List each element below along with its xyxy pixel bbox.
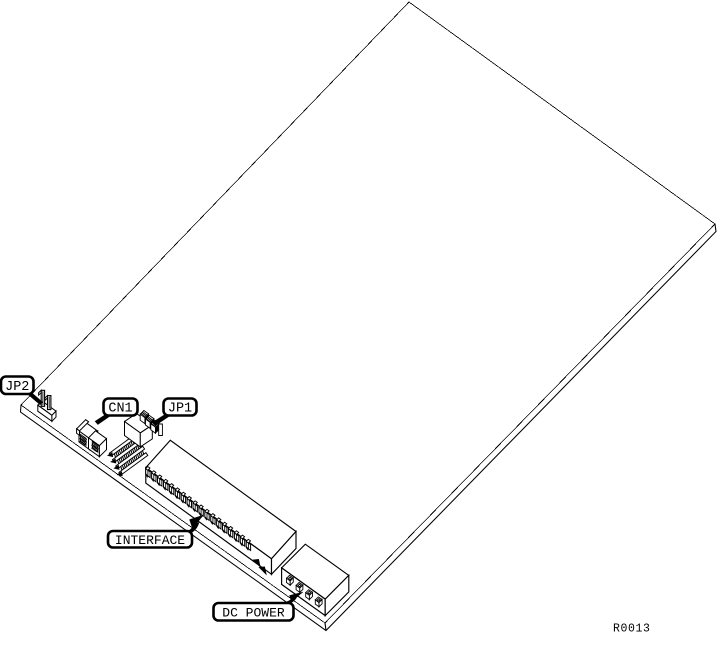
- svg-text:R0013: R0013: [613, 623, 651, 636]
- svg-text:JP1: JP1: [168, 402, 192, 417]
- svg-text:JP2: JP2: [5, 380, 29, 395]
- svg-text:INTERFACE: INTERFACE: [115, 533, 185, 548]
- svg-text:CN1: CN1: [108, 402, 132, 417]
- svg-text:DC POWER: DC POWER: [222, 605, 285, 620]
